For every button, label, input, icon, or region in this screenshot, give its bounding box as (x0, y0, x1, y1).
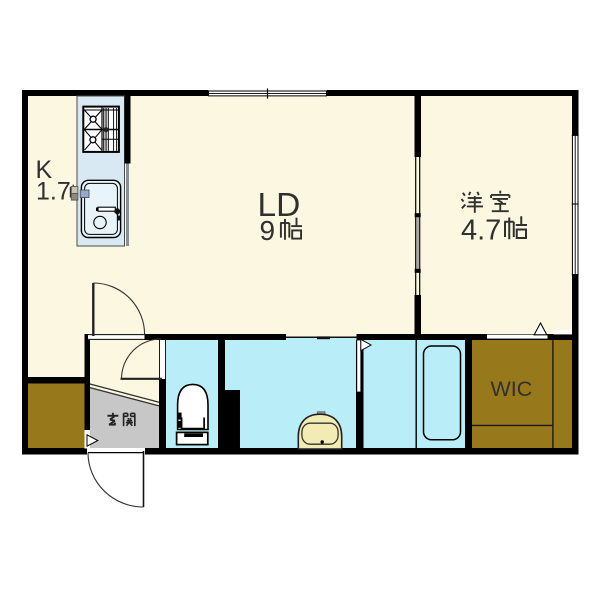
svg-text:9: 9 (260, 215, 276, 246)
svg-text:4.7: 4.7 (461, 215, 501, 247)
svg-text:1.7: 1.7 (36, 178, 71, 206)
svg-text:WIC: WIC (491, 377, 533, 401)
